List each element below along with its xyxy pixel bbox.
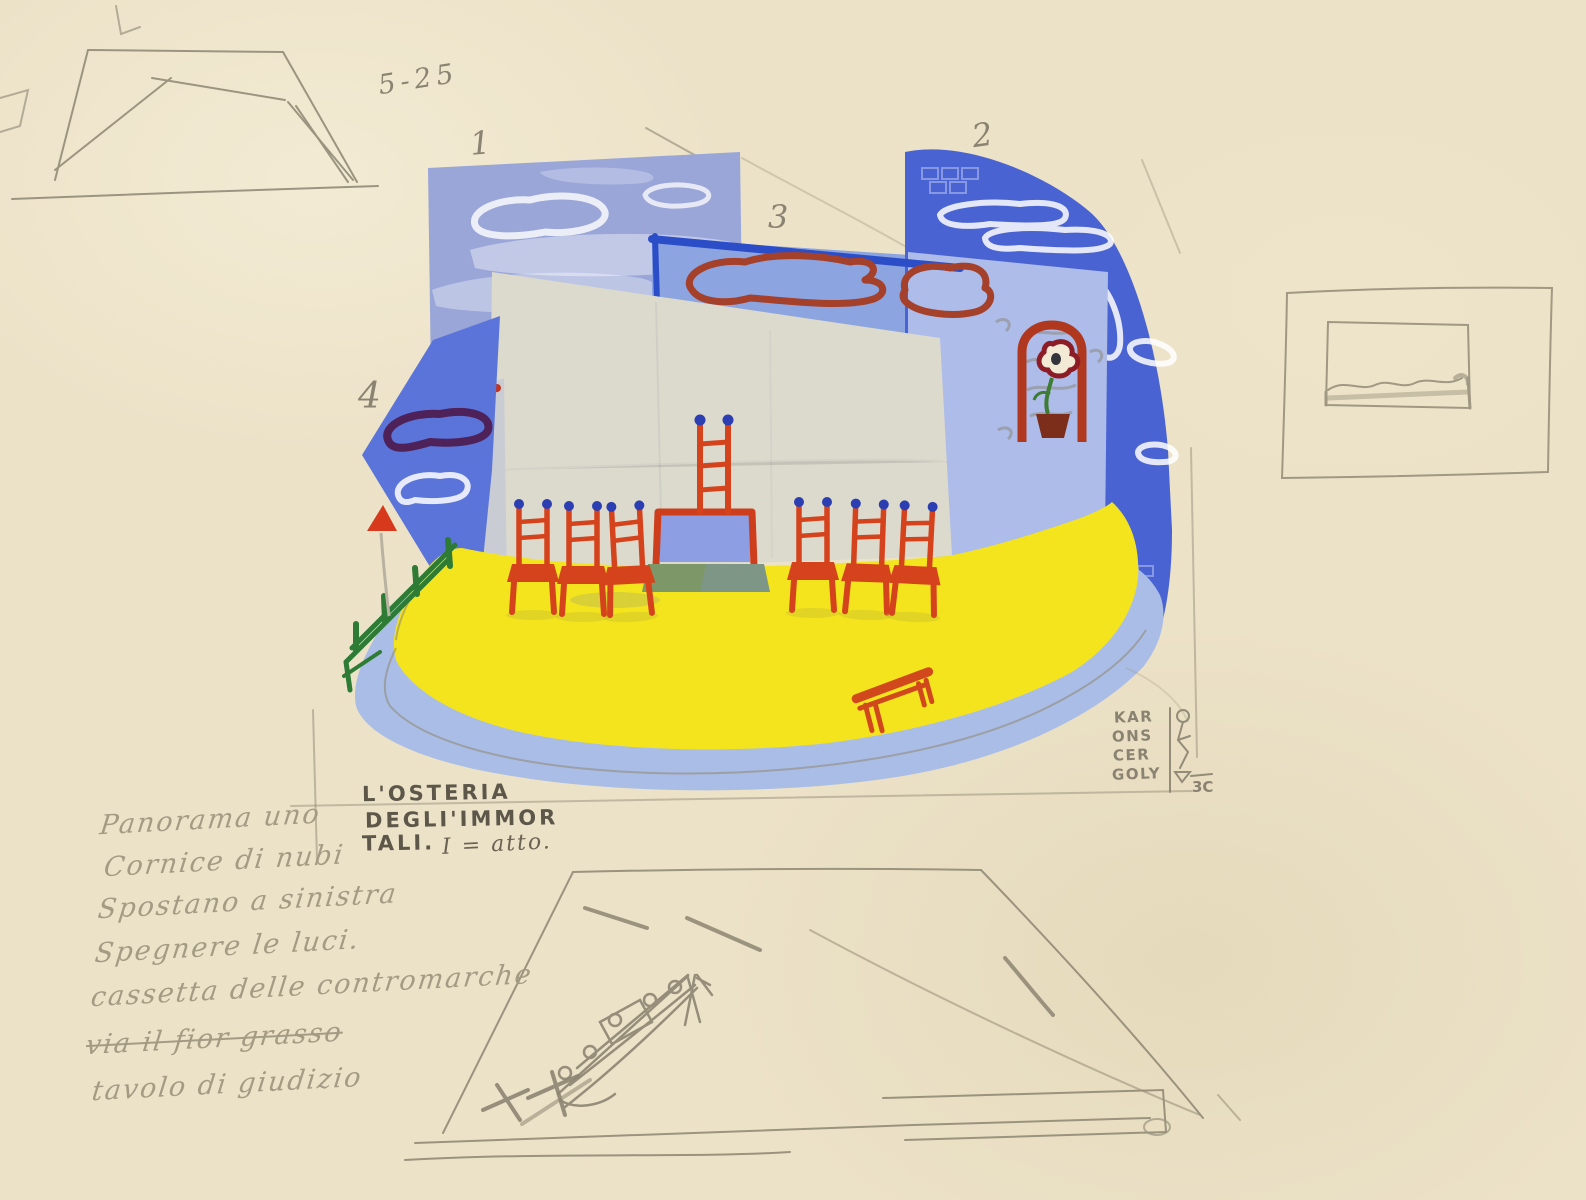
signature-line-3: CER [1113, 745, 1151, 765]
signature-mark: 3C [1192, 778, 1213, 796]
panel-number-4: 4 [358, 376, 381, 417]
title-line-3: TALI. [362, 829, 436, 856]
signature-line-1: KAR [1114, 707, 1154, 727]
mast-lines [685, 975, 700, 1025]
x-marks [483, 1072, 590, 1124]
title-line-1: L'OSTERIA [362, 779, 511, 808]
pencil-proscenium-sketch-right [1282, 288, 1552, 478]
stage-design-painting [0, 0, 1586, 1200]
artwork-page: 5-25 1 2 3 4 L'OSTERIA DEGLI'IMMOR TALI.… [0, 0, 1586, 1200]
panel-number-3: 3 [768, 198, 788, 236]
signature-line-2: ONS [1112, 726, 1153, 746]
panel-number-1: 1 [468, 123, 492, 163]
signature-line-4: GOLY [1112, 764, 1162, 785]
pencil-groundplan-sketch-topleft [12, 50, 378, 199]
